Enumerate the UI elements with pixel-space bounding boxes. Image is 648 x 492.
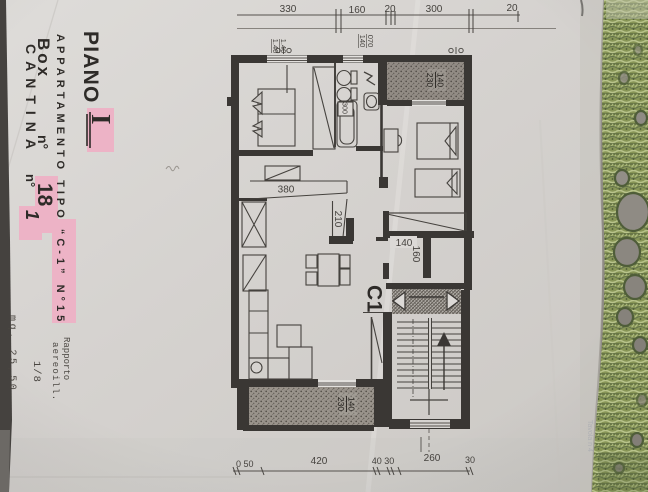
svg-text:380: 380 xyxy=(278,185,295,196)
svg-text:140: 140 xyxy=(358,35,367,48)
svg-text:C1: C1 xyxy=(363,285,386,313)
svg-text:Rapporto: Rapporto xyxy=(61,337,71,380)
svg-text:160: 160 xyxy=(349,5,366,16)
svg-text:230: 230 xyxy=(336,397,346,411)
svg-text:160: 160 xyxy=(410,246,421,263)
svg-text:260: 260 xyxy=(424,453,441,464)
svg-text:aereoill.: aereoill. xyxy=(50,342,60,401)
svg-text:CANTINA: CANTINA xyxy=(23,44,39,156)
svg-text:1.40: 1.40 xyxy=(271,39,280,54)
svg-text:40 30: 40 30 xyxy=(372,456,395,466)
svg-text:20: 20 xyxy=(506,3,518,14)
svg-text:mq. 25,50: mq. 25,50 xyxy=(6,315,17,392)
svg-text:300: 300 xyxy=(426,4,443,15)
svg-text:1/8: 1/8 xyxy=(30,361,42,383)
svg-text:APPARTAMENTO TIPO “C-1” N°15: APPARTAMENTO TIPO “C-1” N°15 xyxy=(54,34,66,325)
svg-text:230: 230 xyxy=(425,73,435,87)
svg-text:140: 140 xyxy=(436,73,446,87)
svg-text:300: 300 xyxy=(341,102,348,114)
svg-text:0 50: 0 50 xyxy=(236,459,254,469)
svg-text:1: 1 xyxy=(22,210,42,220)
svg-text:210: 210 xyxy=(332,211,343,228)
svg-text:420: 420 xyxy=(311,456,328,467)
svg-text:20: 20 xyxy=(384,4,396,15)
svg-text:140: 140 xyxy=(347,397,357,411)
svg-text:PIANO: PIANO xyxy=(79,31,102,104)
svg-text:30: 30 xyxy=(465,455,475,465)
svg-text:330: 330 xyxy=(280,4,297,15)
svg-text:n°: n° xyxy=(23,174,38,187)
